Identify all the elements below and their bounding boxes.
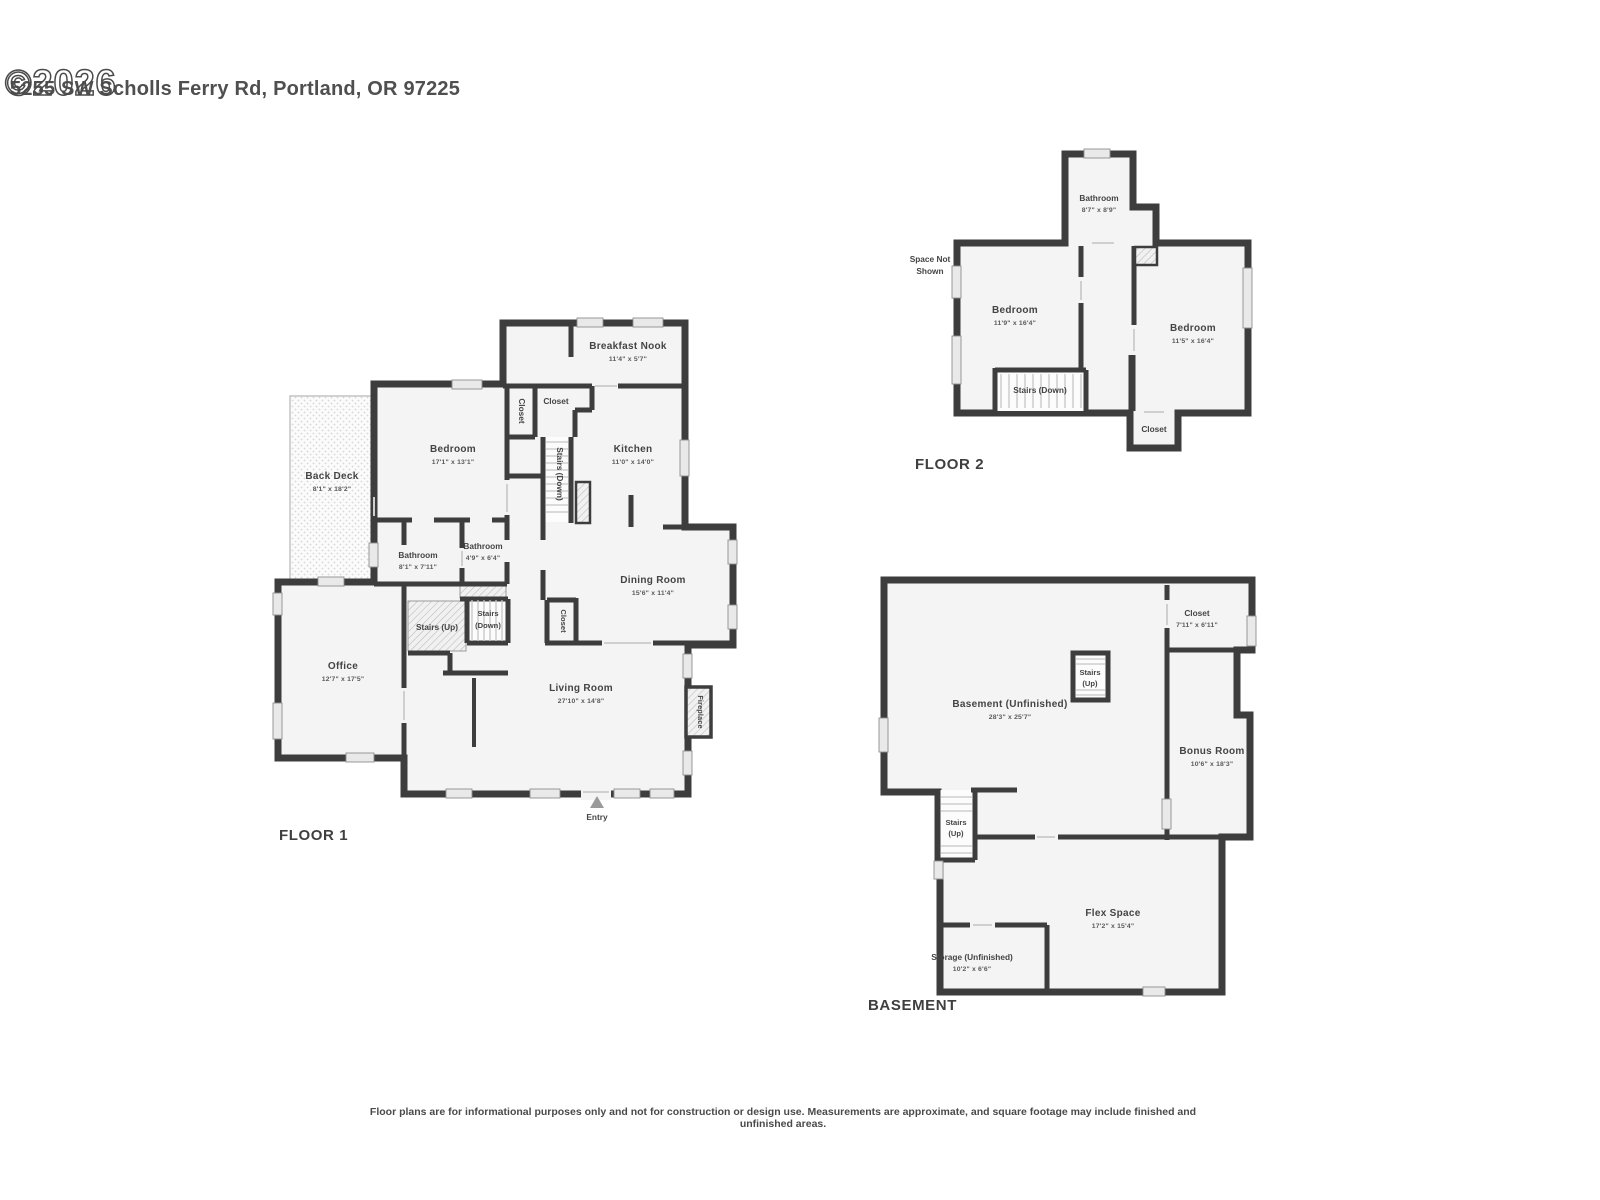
chimney-hatch-f2	[1135, 247, 1157, 265]
room-dims-flex: 17'2" x 15'4"	[1092, 923, 1135, 930]
floor1-title: FLOOR 1	[279, 827, 348, 844]
room-label-bedroom-a-f2: Bedroom	[992, 305, 1038, 316]
room-label-bathroom-a: Bathroom	[398, 550, 437, 560]
label-stairs-up-left-1: Stairs	[945, 818, 966, 827]
room-label-dining: Dining Room	[620, 575, 686, 586]
room-label-stairs-down-f2: Stairs (Down)	[1013, 385, 1067, 395]
room-label-fireplace: Fireplace	[696, 695, 705, 728]
room-label-bedroom-b-f2: Bedroom	[1170, 323, 1216, 334]
room-dims-bedroom-a-f2: 11'9" x 16'4"	[994, 320, 1036, 327]
room-label-stairs-down-1: Stairs	[477, 609, 498, 618]
room-label-office: Office	[328, 661, 358, 672]
room-dims-closet-b: 7'11" x 6'11"	[1176, 622, 1218, 629]
room-dims-living: 27'10" x 14'8"	[558, 698, 605, 705]
room-label-stairs-up: Stairs (Up)	[416, 622, 458, 632]
room-label-closet-f2: Closet	[1141, 424, 1167, 434]
floor-plan-drawing: Breakfast Nook 11'4" x 5'7" Closet Close…	[0, 0, 1600, 1200]
room-dims-office: 12'7" x 17'5"	[322, 676, 365, 683]
basement-footprint	[884, 580, 1252, 992]
room-label-storage: Storage (Unfinished)	[931, 952, 1013, 962]
room-label-closet-a: Closet	[517, 398, 527, 424]
label-space-not-shown-2: Shown	[916, 266, 943, 276]
room-label-basement: Basement (Unfinished)	[952, 699, 1067, 710]
label-space-not-shown-1: Space Not	[910, 254, 951, 264]
room-dims-bedroom: 17'1" x 13'1"	[432, 459, 475, 466]
room-dims-bathroom-f2: 8'7" x 8'9"	[1082, 207, 1117, 214]
room-label-bathroom-f2: Bathroom	[1079, 193, 1118, 203]
room-dims-basement: 28'3" x 25'7"	[989, 714, 1032, 721]
room-dims-bonus: 10'6" x 18'3"	[1191, 761, 1234, 768]
room-label-kitchen: Kitchen	[614, 444, 653, 455]
entry-label: Entry	[586, 812, 608, 822]
room-dims-bathroom-b: 4'9" x 6'4"	[466, 555, 501, 562]
room-label-closet-b: Closet	[543, 396, 569, 406]
room-dims-kitchen: 11'0" x 14'0"	[612, 459, 654, 466]
room-dims-back-deck: 8'1" x 18'2"	[313, 486, 352, 493]
floor2-title: FLOOR 2	[915, 456, 984, 473]
basement-title: BASEMENT	[868, 997, 957, 1014]
room-label-bonus: Bonus Room	[1179, 746, 1244, 757]
room-label-back-deck: Back Deck	[305, 471, 358, 482]
room-label-closet-b: Closet	[1184, 608, 1210, 618]
label-stairs-up-center-2: (Up)	[1082, 679, 1098, 688]
room-label-bedroom: Bedroom	[430, 444, 476, 455]
room-dims-dining: 15'6" x 11'4"	[632, 590, 674, 597]
address-title: 5255 SW Scholls Ferry Rd, Portland, OR 9…	[10, 78, 460, 101]
floor2-plan: Bathroom 8'7" x 8'9" Space Not Shown Bed…	[910, 149, 1252, 473]
room-dims-storage: 10'2" x 6'6"	[953, 966, 992, 973]
floor-plan-page: Breakfast Nook 11'4" x 5'7" Closet Close…	[0, 0, 1600, 1200]
label-stairs-up-center-1: Stairs	[1079, 668, 1100, 677]
label-stairs-up-left-2: (Up)	[948, 829, 964, 838]
room-label-living: Living Room	[549, 683, 613, 694]
room-label-stairs-down-2: (Down)	[475, 621, 501, 630]
stair-landing-hatch	[460, 586, 506, 598]
room-dims-breakfast-nook: 11'4" x 5'7"	[609, 356, 647, 363]
room-label-bathroom-b: Bathroom	[463, 541, 502, 551]
room-label-breakfast-nook: Breakfast Nook	[589, 341, 667, 352]
chimney-hatch	[576, 482, 590, 523]
floor1-plan: Breakfast Nook 11'4" x 5'7" Closet Close…	[273, 318, 737, 844]
room-dims-bedroom-b-f2: 11'5" x 16'4"	[1172, 338, 1214, 345]
room-label-closet-c: Closet	[559, 609, 568, 633]
room-label-stairs-down-upper: Stairs (Down)	[555, 447, 565, 501]
disclaimer-text: Floor plans are for informational purpos…	[350, 1106, 1216, 1130]
room-label-flex: Flex Space	[1085, 908, 1140, 919]
basement-plan: Closet 7'11" x 6'11" Stairs (Up) Basemen…	[868, 580, 1256, 1014]
room-dims-bathroom-a: 8'1" x 7'11"	[399, 564, 437, 571]
